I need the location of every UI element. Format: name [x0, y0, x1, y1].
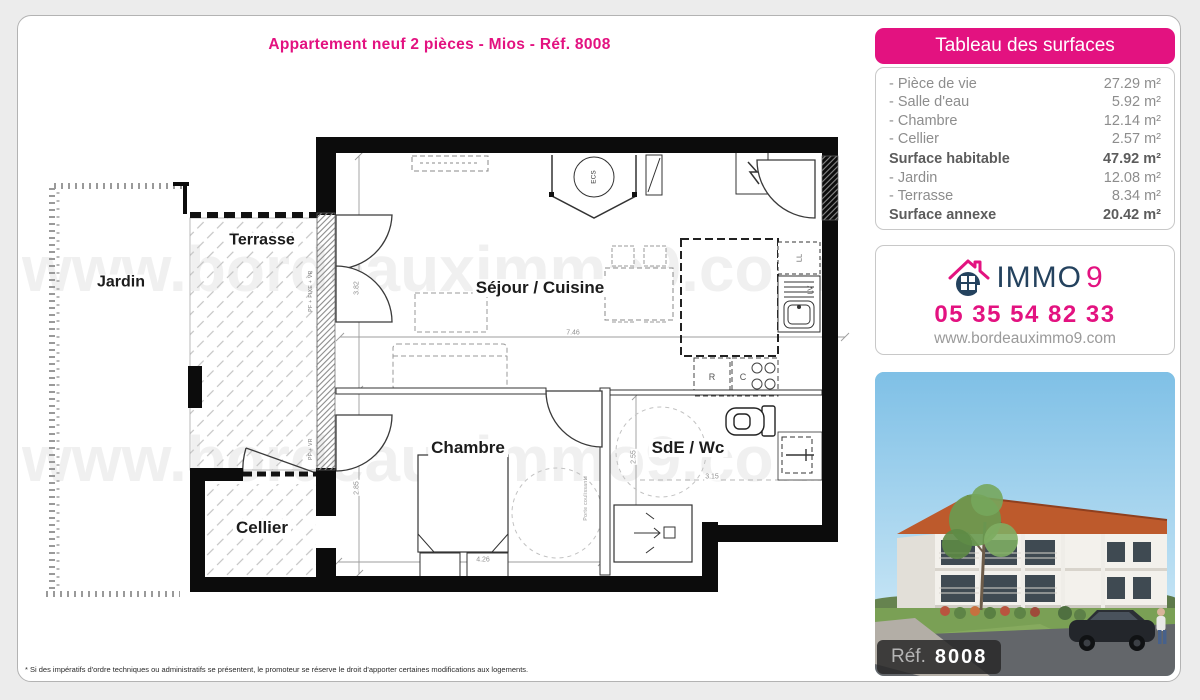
dim-3-15: 3.15 — [704, 474, 720, 481]
table-row: - Pièce de vie27.29 m² — [889, 75, 1161, 93]
room-label-sde: SdE / Wc — [649, 439, 728, 457]
table-row: - Jardin12.08 m² — [889, 169, 1161, 187]
jardin-hedge-border — [46, 186, 184, 594]
dim-7-46: 7.46 — [565, 330, 581, 337]
agency-logo: IMMO9 — [876, 256, 1174, 300]
toilet-icon — [726, 406, 775, 436]
shower-icon — [614, 505, 692, 562]
window-strip-left — [317, 213, 335, 470]
terrasse-area — [190, 215, 318, 470]
floor-plan — [0, 0, 870, 700]
ref-label: Réf. — [891, 646, 926, 668]
building-rendering — [875, 372, 1175, 676]
property-photo — [875, 372, 1175, 676]
table-row: - Terrasse8.34 m² — [889, 187, 1161, 205]
hob-label: C — [740, 372, 747, 382]
table-row-total-habitable: Surface habitable47.92 m² — [889, 149, 1161, 169]
dim-4-26: 4.26 — [475, 557, 491, 564]
entrance-door-arc — [757, 160, 815, 218]
room-label-chambre: Chambre — [428, 439, 508, 457]
agency-card: IMMO9 05 35 54 82 33 www.bordeauximmo9.c… — [875, 245, 1175, 355]
disclaimer-text: * Si des impératifs d'ordre techniques o… — [25, 665, 528, 674]
table-row: - Chambre12.14 m² — [889, 112, 1161, 130]
dim-3-82: 3.82 — [354, 280, 361, 296]
surfaces-table-header: Tableau des surfaces — [875, 28, 1175, 64]
brand-digit: 9 — [1086, 261, 1104, 295]
room-label-jardin: Jardin — [94, 275, 148, 292]
dim-2-55: 2.55 — [631, 449, 638, 465]
brand-wordmark: IMMO — [996, 261, 1082, 295]
room-label-cellier: Cellier — [233, 519, 291, 537]
window-note-upper: PF + FIXE + VR — [308, 270, 314, 311]
surfaces-table: - Pièce de vie27.29 m² - Salle d'eau5.92… — [875, 67, 1175, 230]
table-row-total-annexe: Surface annexe20.42 m² — [889, 205, 1161, 225]
ecs-label: ECS — [591, 170, 598, 183]
room-label-sejour: Séjour / Cuisine — [473, 279, 607, 297]
window-note-lower: PF + VR — [308, 438, 314, 460]
photo-ref-badge: Réf. 8008 — [877, 640, 1001, 674]
dim-2-85: 2.85 — [354, 480, 361, 496]
dishwasher-label: LV — [806, 286, 815, 295]
window-strip-entrance — [822, 156, 838, 220]
website-url: www.bordeauximmo9.com — [876, 330, 1174, 348]
fridge-label: R — [709, 372, 716, 382]
table-row: - Salle d'eau5.92 m² — [889, 93, 1161, 111]
immo9-house-icon — [946, 256, 992, 300]
page: Appartement neuf 2 pièces - Mios - Réf. … — [0, 0, 1200, 700]
sliding-door-note: Porte coulissante — [583, 475, 589, 520]
room-label-terrasse: Terrasse — [226, 233, 298, 250]
phone-number: 05 35 54 82 33 — [876, 301, 1174, 329]
washer-label: LL — [795, 254, 804, 262]
table-row: - Cellier2.57 m² — [889, 130, 1161, 148]
ref-number: 8008 — [935, 646, 988, 669]
